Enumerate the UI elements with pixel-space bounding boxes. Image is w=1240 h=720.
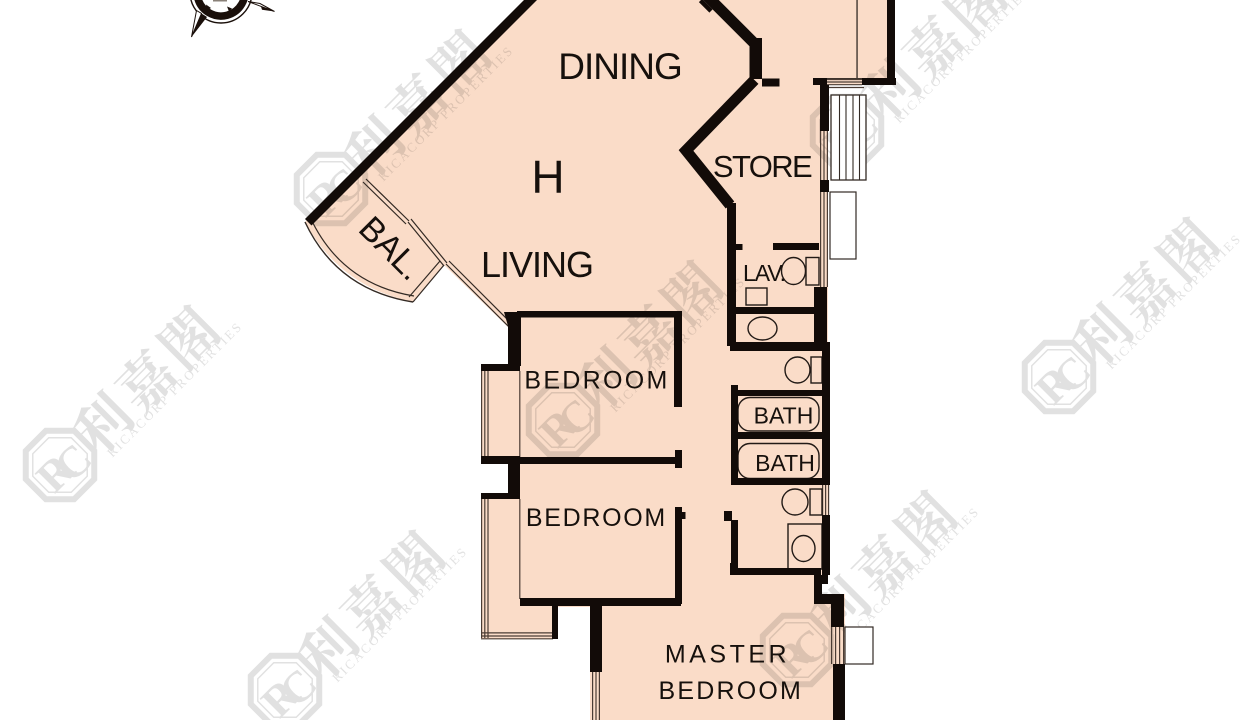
svg-text:BATH: BATH — [754, 403, 814, 429]
svg-text:BEDROOM: BEDROOM — [526, 504, 667, 532]
svg-text:STORE: STORE — [713, 149, 812, 184]
svg-text:LAV.: LAV. — [743, 260, 785, 286]
svg-text:DINING: DINING — [558, 46, 682, 87]
svg-text:H: H — [531, 151, 564, 203]
svg-text:LIVING: LIVING — [481, 244, 593, 285]
svg-text:BEDROOM: BEDROOM — [524, 366, 669, 394]
svg-text:BATH: BATH — [755, 450, 815, 476]
svg-text:MASTER: MASTER — [665, 641, 790, 669]
svg-text:BEDROOM: BEDROOM — [659, 677, 804, 705]
